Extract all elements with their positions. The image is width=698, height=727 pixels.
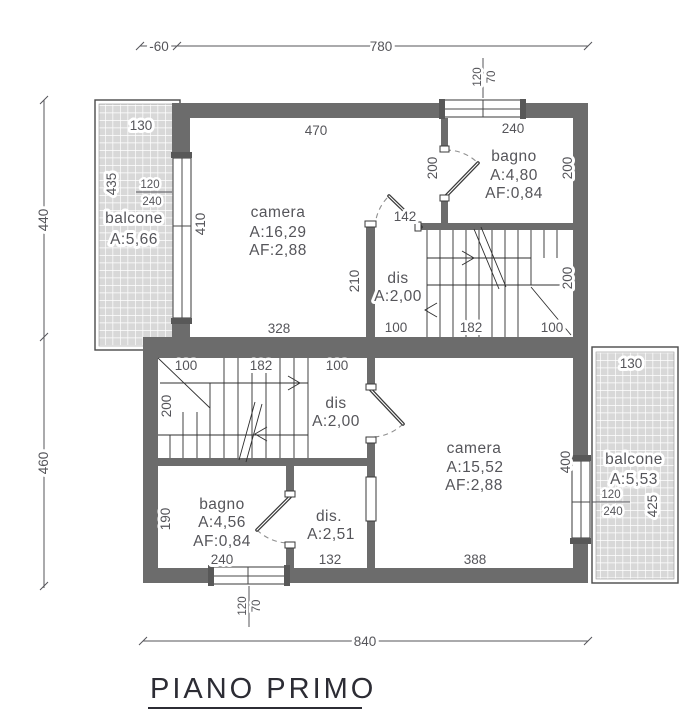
room-area-camera-lower: A:15,52 bbox=[447, 459, 504, 476]
room-label-dis2-lower: dis. bbox=[316, 508, 342, 525]
room-label-balcone-right: balcone bbox=[605, 451, 663, 468]
dim-balcone-right-side: 425 bbox=[645, 495, 660, 518]
dim-balcone-left-side: 435 bbox=[104, 173, 119, 196]
dim-camera-lower-bottom: 388 bbox=[464, 552, 487, 567]
dim-window-bottom-height: 70 bbox=[251, 600, 263, 613]
room-area-bagno-upper: A:4,80 bbox=[490, 167, 538, 184]
room-label-bagno-lower: bagno bbox=[199, 496, 245, 513]
dim-left-upper: 440 bbox=[36, 209, 51, 232]
dim-upper-stairs-1: 100 bbox=[385, 320, 408, 335]
door-lower-camera bbox=[366, 384, 403, 443]
dim-bagno-lower-left: 190 bbox=[158, 508, 173, 531]
dim-lower-stairs-2: 182 bbox=[250, 358, 273, 373]
dim-camera-upper-top: 470 bbox=[305, 123, 328, 138]
dim-window-top-width: 120 bbox=[472, 67, 484, 86]
door-upper-bagno bbox=[440, 146, 478, 201]
dim-window-right-b: 240 bbox=[603, 506, 622, 518]
room-label-camera-upper: camera bbox=[251, 204, 306, 221]
room-af-bagno-lower: AF:0,84 bbox=[193, 533, 251, 550]
dim-window-left-b: 240 bbox=[142, 196, 161, 208]
dim-top-offset: -60 bbox=[149, 39, 169, 54]
room-area-dis2-lower: A:2,51 bbox=[307, 526, 355, 543]
dim-window-left-a: 120 bbox=[140, 179, 159, 191]
room-area-dis-upper: A:2,00 bbox=[374, 288, 422, 305]
window-bottom bbox=[208, 565, 290, 586]
left-dimension-line bbox=[40, 96, 48, 590]
dim-bagno-upper-left: 200 bbox=[425, 157, 440, 180]
title-block: PIANO PRIMO bbox=[148, 673, 376, 708]
room-label-bagno-upper: bagno bbox=[491, 148, 537, 165]
dim-window-bottom-width: 120 bbox=[237, 596, 249, 615]
dim-left-lower: 460 bbox=[36, 452, 51, 475]
room-af-camera-lower: AF:2,88 bbox=[445, 477, 503, 494]
dim-camera-lower-right: 400 bbox=[558, 451, 573, 474]
dim-dis2-bottom: 132 bbox=[319, 552, 342, 567]
dim-upper-stairs-2: 182 bbox=[460, 320, 483, 335]
floor-plan-page: -60 780 440 460 840 camera A:16,29 AF:2,… bbox=[0, 0, 698, 727]
room-area-balcone-left: A:5,66 bbox=[110, 231, 158, 248]
door-lower-dis-flush bbox=[366, 477, 376, 521]
room-area-balcone-right: A:5,53 bbox=[610, 471, 658, 488]
dim-camera-upper-left: 410 bbox=[193, 213, 208, 236]
room-area-camera-upper: A:16,29 bbox=[250, 224, 307, 241]
window-left bbox=[171, 152, 192, 324]
upper-stairs-arrows bbox=[425, 251, 474, 317]
dim-bagno-upper-right: 200 bbox=[560, 157, 575, 180]
room-af-camera-upper: AF:2,88 bbox=[249, 242, 307, 259]
room-area-bagno-lower: A:4,56 bbox=[198, 514, 246, 531]
dim-balcone-right-top: 130 bbox=[620, 356, 643, 371]
room-af-bagno-upper: AF:0,84 bbox=[485, 185, 543, 202]
dim-camera-upper-bottom: 328 bbox=[268, 321, 291, 336]
dim-window-top-height: 70 bbox=[486, 71, 498, 84]
dim-window-right-a: 120 bbox=[601, 489, 620, 501]
dim-bagno-upper-top: 240 bbox=[502, 121, 525, 136]
room-label-camera-lower: camera bbox=[447, 440, 502, 457]
room-label-balcone-left: balcone bbox=[105, 210, 163, 227]
dim-lower-stairs-1: 100 bbox=[175, 358, 198, 373]
room-area-dis-lower: A:2,00 bbox=[312, 413, 360, 430]
lower-stairs-arrows bbox=[255, 376, 300, 441]
dim-lower-stairs-3: 100 bbox=[326, 358, 349, 373]
dim-camera-upper-right: 210 bbox=[347, 270, 362, 293]
floor-plan-drawing: -60 780 440 460 840 camera A:16,29 AF:2,… bbox=[0, 0, 698, 727]
dim-door-142: 142 bbox=[394, 209, 417, 224]
room-label-dis-lower: dis bbox=[325, 395, 346, 412]
window-right bbox=[570, 455, 591, 544]
dim-balcone-left-top: 130 bbox=[130, 118, 153, 133]
dim-upper-stairs-3: 100 bbox=[541, 320, 564, 335]
dim-top-width: 780 bbox=[370, 39, 393, 54]
room-label-dis-upper: dis bbox=[387, 270, 408, 287]
door-lower-bagno bbox=[257, 491, 295, 548]
top-dimension-line bbox=[136, 42, 592, 50]
lower-stairs bbox=[158, 358, 308, 462]
window-top bbox=[439, 99, 526, 119]
dim-bottom-width: 840 bbox=[354, 634, 377, 649]
dim-bagno-lower-bottom: 240 bbox=[211, 552, 234, 567]
page-title: PIANO PRIMO bbox=[150, 673, 376, 705]
dim-lower-stairs-height: 200 bbox=[159, 395, 174, 418]
dim-upper-stairs-height: 200 bbox=[560, 267, 575, 290]
